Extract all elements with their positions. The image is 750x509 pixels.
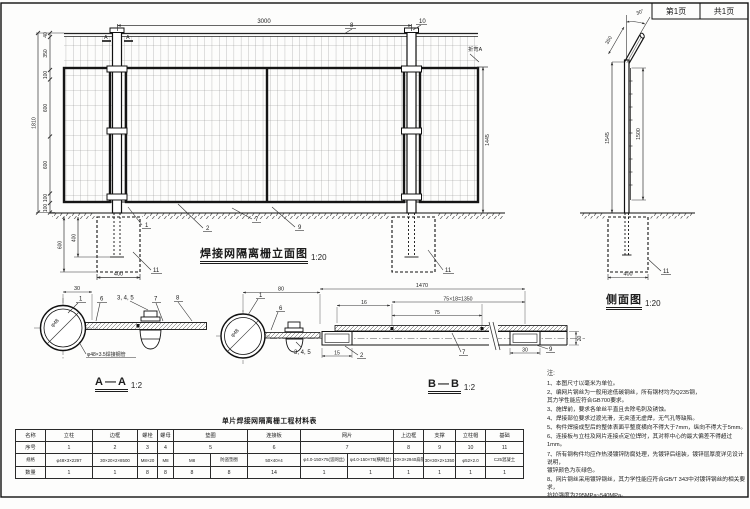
table-cell: 螺母 — [158, 430, 174, 442]
table-cell: 11 — [486, 442, 524, 454]
table-cell: 边框 — [93, 430, 138, 442]
dim-aa-30: 30 — [74, 286, 80, 292]
dim-bb-1350: 75×18=1350 — [443, 297, 472, 303]
dim-bb-15: 15 — [334, 351, 340, 357]
materials-table: 名称 立柱 边框 螺栓 螺母 垫圈 连接板 网片 上边框 支撑 立柱帽 基础 序… — [15, 429, 524, 479]
table-cell: 垫圈 — [174, 430, 248, 442]
table-cell: φ48×3×2297 — [46, 454, 93, 467]
note-2: 2、编网片钢丝为一般用途低碳钢丝，所有钢材均为Q235钢， 其力学性能应符合GB… — [547, 389, 749, 405]
bb-scale: 1:2 — [464, 383, 475, 392]
callout-11-right: 11 — [445, 268, 452, 274]
callout-11-left: 11 — [153, 268, 160, 274]
dim-350: 350 — [43, 49, 49, 58]
table-cell: 名称 — [16, 430, 46, 442]
table-cell: 14 — [248, 467, 301, 479]
table-row-numbers: 序号 1 2 3 4 5 6 7 8 9 10 11 — [16, 442, 524, 454]
callout-aa-345: 3, 4, 5 — [117, 296, 134, 302]
callout-11-side: 11 — [663, 269, 670, 275]
dim-40: 40 — [43, 32, 49, 38]
dim-embed-400: 400 — [72, 234, 78, 243]
note-6: 6、连接板与立柱及网片连接点定位焊时，其对称中心的最大偏差不得超过1mm。 — [547, 433, 749, 449]
table-cell: φ4.0-150×75(竖网丝) — [301, 454, 348, 467]
note-3: 3、施焊前，要求各单丝平直且去除毛刺及锈蚀。 — [547, 406, 749, 414]
page-number: 第1页 — [666, 6, 686, 16]
table-cell: 序号 — [16, 442, 46, 454]
elevation-view: A A — [32, 19, 506, 280]
table-cell: 螺栓 — [138, 430, 158, 442]
table-cell: 1 — [394, 467, 424, 479]
dim-bb-16: 16 — [361, 300, 367, 306]
table-cell: M8×20 — [138, 454, 158, 467]
note-1: 1、本图尺寸以毫米为单位。 — [547, 380, 749, 388]
dim-bb-80: 80 — [278, 287, 284, 293]
side-title: 侧面图1:20 — [606, 290, 661, 308]
table-cell: 30×30×2×1350 — [424, 454, 456, 467]
callout-aa-8: 8 — [176, 296, 180, 302]
dim-depth-600: 600 — [58, 241, 64, 250]
table-cell: 上边框 — [394, 430, 424, 442]
table-cell: 8 — [211, 467, 248, 479]
table-cell: 规格 — [16, 454, 46, 467]
callout-bb-6: 6 — [279, 306, 283, 312]
table-cell: 1 — [301, 467, 348, 479]
elevation-scale: 1:20 — [311, 253, 327, 262]
table-cell: 9 — [424, 442, 456, 454]
elevation-title-text: 焊接网隔离栅立面图 — [200, 248, 308, 264]
callout-aa-7: 7 — [154, 297, 158, 303]
dim-1445: 1445 — [485, 134, 491, 146]
aa-scale: 1:2 — [131, 381, 142, 390]
ground-line — [50, 213, 505, 219]
table-cell: 数量 — [16, 467, 46, 479]
side-dimensions — [608, 15, 671, 280]
table-cell: 8 — [138, 467, 158, 479]
table-cell: 4 — [158, 442, 174, 454]
page-total: 共1页 — [714, 7, 734, 16]
table-cell: 基础 — [486, 430, 524, 442]
callout-aa-1: 1 — [79, 297, 83, 303]
callout-bb-345: 3, 4, 5 — [294, 350, 311, 356]
note-7: 7、所有钢构件均应作热浸镀锌防腐处理，先镀锌后组装，镀锌层厚度详见设计说明， 镀… — [547, 451, 749, 475]
table-cell: C25混凝土 — [486, 454, 524, 467]
table-cell: 1 — [46, 442, 93, 454]
table-row-qtys: 数量 1 1 8 8 8 8 14 1 1 1 1 1 1 — [16, 467, 524, 479]
table-cell: 2 — [93, 442, 138, 454]
dim-100: 100 — [43, 71, 49, 80]
table-cell: 立柱 — [46, 430, 93, 442]
callout-8: 8 — [350, 23, 354, 29]
callout-2: 2 — [206, 226, 210, 232]
callout-bb-1: 1 — [259, 293, 263, 299]
aa-title-text: A—A — [95, 376, 128, 392]
note-5: 5、构件焊接成型后的整体表面平整度横向不得大于7mm，纵向不得大于5mm。 — [547, 424, 749, 432]
table-cell: 8 — [158, 467, 174, 479]
dim-100c: 100 — [43, 204, 49, 213]
table-row-specs: 规格 φ48×3×2297 30×20×2×8500 M8×20 M8 M8 防… — [16, 454, 524, 467]
notes-heading: 注: — [547, 370, 749, 379]
dim-1810: 1810 — [32, 117, 38, 129]
dim-side-400: 400 — [623, 272, 632, 278]
cut-label-a: A — [126, 35, 130, 41]
side-scale: 1:20 — [645, 299, 661, 308]
callout-bb-9: 9 — [549, 347, 553, 353]
notes-block: 注: 1、本图尺寸以毫米为单位。 2、编网片钢丝为一般用途低碳钢丝，所有钢材均为… — [547, 370, 749, 501]
table-cell: 50×40×4 — [248, 454, 301, 467]
table-cell: 20×3×2940扁钢 — [394, 454, 424, 467]
callout-bb-2: 2 — [360, 353, 364, 359]
dim-angle-30: 30° — [636, 8, 645, 16]
table-cell: 5 — [174, 442, 248, 454]
dim-bb-75: 75 — [434, 310, 440, 316]
section-aa: 30 φ48 1 6 3, 4, 5 7 8 φ48×3.5焊接钢管 — [34, 286, 207, 360]
table-cell: 1 — [424, 467, 456, 479]
callout-1: 1 — [145, 223, 149, 229]
elevation-title: 焊接网隔离栅立面图1:20 — [200, 244, 327, 262]
callout-bb-7: 7 — [462, 350, 466, 356]
callout-10: 10 — [419, 19, 426, 25]
dim-bb-1470: 1470 — [416, 283, 428, 289]
table-cell: 1 — [348, 467, 394, 479]
section-bb: 80 1470 16 75×18=1350 75 15 30 20 φ48 1 … — [216, 283, 585, 364]
dim-1545: 1545 — [605, 132, 611, 144]
table-cell: 30×20×2×8500 — [93, 454, 138, 467]
bb-title: B—B1:2 — [428, 374, 475, 392]
table-cell: 连接板 — [248, 430, 301, 442]
table-cell: 1 — [46, 467, 93, 479]
dim-1500: 1500 — [636, 128, 642, 140]
table-row-names: 名称 立柱 边框 螺栓 螺母 垫圈 连接板 网片 上边框 支撑 立柱帽 基础 — [16, 430, 524, 442]
bb-title-text: B—B — [428, 378, 461, 394]
dim-bend-350: 350 — [604, 35, 613, 45]
table-cell: M8 — [174, 454, 211, 467]
table-cell: 1 — [456, 467, 486, 479]
table-cell: 网片 — [301, 430, 394, 442]
dim-600: 600 — [43, 104, 49, 113]
callout-9: 9 — [298, 225, 302, 231]
table-cell: 立柱帽 — [456, 430, 486, 442]
drawing-sheet: 第1页 共1页 — [0, 0, 750, 509]
table-cell: 6 — [248, 442, 301, 454]
table-cell: φ52×2.0 — [456, 454, 486, 467]
note-4: 4、焊接部位要求过渡光滑，无夹渣无虚焊，无气孔等缺陷。 — [547, 415, 749, 423]
table-cell: 10 — [456, 442, 486, 454]
side-view: 30° 350 1545 1500 400 11 — [580, 8, 695, 280]
bb-labels: 80 1470 16 75×18=1350 75 15 30 20 φ48 1 … — [230, 283, 583, 359]
callout-aa-6: 6 — [100, 297, 104, 303]
table-cell: 支撑 — [424, 430, 456, 442]
table-cell: 1 — [93, 467, 138, 479]
dim-100b: 100 — [43, 194, 49, 203]
table-cell: 1 — [486, 467, 524, 479]
side-foundation — [608, 213, 648, 272]
dim-600b: 600 — [43, 161, 49, 170]
table-cell: 防盗垫圈 — [211, 454, 248, 467]
table-cell: 3 — [138, 442, 158, 454]
table-cell: 8 — [394, 442, 424, 454]
bend-a-label: 折弯A — [468, 45, 483, 53]
dim-bb-20: 20 — [577, 336, 583, 342]
dim-bb-30: 30 — [522, 348, 528, 354]
aa-title: A—A1:2 — [95, 372, 142, 390]
materials-table-title: 单片焊接网隔离栅工程材料表 — [222, 415, 317, 425]
table-cell: φ4.0-150×75(横网丝) — [348, 454, 394, 467]
dim-found-width: 400 — [114, 272, 123, 278]
pipe-spec-label: φ48×3.5焊接钢管 — [87, 351, 126, 358]
note-8: 8、网片钢丝采用镀锌钢丝，其力学性能应符合GB/T 343中对镀锌钢丝的相关要求… — [547, 476, 749, 500]
table-cell: M8 — [158, 454, 174, 467]
table-cell: 8 — [174, 467, 211, 479]
cut-label-a: A — [104, 35, 108, 41]
side-title-text: 侧面图 — [606, 294, 642, 310]
dim-3000: 3000 — [257, 19, 271, 25]
table-cell: 7 — [301, 442, 394, 454]
